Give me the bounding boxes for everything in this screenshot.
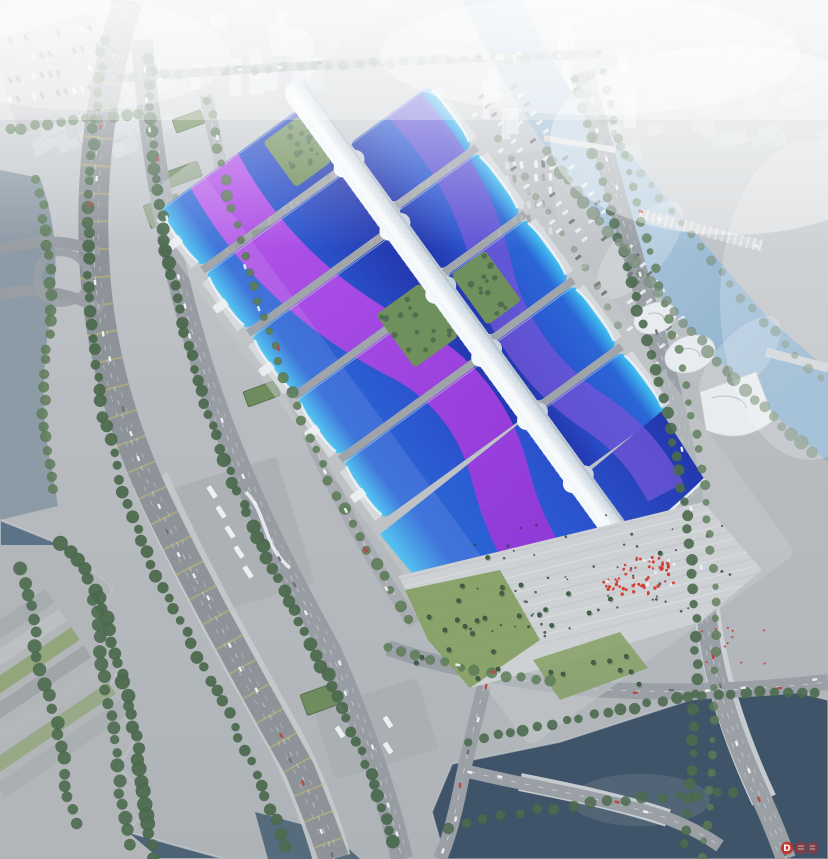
tree — [425, 655, 435, 665]
tree — [664, 314, 673, 323]
crowd-dot — [632, 590, 635, 593]
visitor-dot — [513, 550, 515, 552]
visitor-dot — [630, 516, 632, 518]
visitor-dot — [655, 598, 658, 601]
tree — [187, 350, 198, 361]
tree — [478, 814, 488, 824]
tree — [71, 818, 82, 829]
tree — [326, 681, 337, 692]
tree — [113, 748, 122, 757]
tree — [533, 722, 542, 731]
tree — [256, 780, 267, 791]
tree — [381, 813, 392, 824]
tree — [647, 350, 656, 359]
visitor-dot — [507, 544, 510, 547]
visitor-dot — [729, 573, 732, 576]
tree — [714, 690, 724, 700]
tree — [48, 484, 58, 494]
visitor-dot — [514, 590, 516, 592]
crowd-dot — [641, 584, 644, 587]
crowd-dot — [652, 560, 655, 563]
tree — [217, 453, 231, 467]
tree — [114, 789, 124, 799]
tree — [105, 637, 116, 648]
tree — [709, 564, 718, 573]
crowd-dot — [727, 642, 729, 644]
tree — [351, 737, 361, 747]
tree — [232, 486, 241, 495]
tree — [708, 769, 716, 777]
crowd-dot — [625, 588, 628, 591]
tree — [689, 721, 699, 731]
tree — [47, 472, 57, 482]
tree — [170, 280, 180, 290]
tree — [131, 730, 142, 741]
palm-fronds — [560, 671, 565, 676]
tree — [695, 445, 702, 452]
tree — [45, 305, 56, 316]
palm-fronds — [549, 623, 554, 628]
tree — [516, 809, 525, 818]
crowd-dot — [636, 557, 638, 559]
tree — [726, 690, 735, 699]
palm-fronds — [442, 627, 447, 632]
tree — [712, 598, 721, 607]
crowd-dot — [715, 628, 717, 630]
crowd-dot — [672, 563, 675, 566]
tree — [135, 535, 147, 547]
tree — [690, 631, 701, 642]
tree — [614, 322, 622, 330]
tree — [712, 357, 722, 367]
palm-fronds — [474, 618, 479, 623]
tree — [358, 747, 366, 755]
tree — [313, 446, 320, 453]
tree — [253, 771, 262, 780]
car — [633, 691, 638, 694]
tree — [40, 431, 51, 442]
tree — [684, 778, 696, 790]
tree — [706, 530, 713, 537]
crowd-dot — [731, 636, 733, 638]
tree — [304, 638, 317, 651]
tree — [636, 792, 648, 804]
tree — [165, 594, 174, 603]
tree — [211, 430, 221, 440]
tree — [687, 584, 698, 595]
tree — [68, 804, 78, 814]
crowd-dot — [646, 579, 648, 581]
crowd-dot — [763, 629, 765, 631]
tree — [40, 395, 50, 405]
tree — [548, 804, 559, 815]
tree — [224, 707, 235, 718]
crowd-dot — [657, 557, 660, 560]
tree — [185, 638, 196, 649]
tree — [28, 614, 39, 625]
crowd-dot — [647, 591, 650, 594]
tree — [332, 491, 341, 500]
tree — [323, 476, 333, 486]
tree — [274, 357, 282, 365]
crowd-dot — [649, 558, 651, 560]
tree — [665, 423, 677, 435]
tree — [602, 796, 612, 806]
tree — [101, 420, 113, 432]
crowd-dot — [624, 564, 627, 567]
tree — [287, 386, 299, 398]
tree — [162, 256, 176, 270]
palm-fronds — [499, 591, 504, 596]
tree — [322, 668, 336, 682]
tree — [783, 688, 793, 698]
tree — [117, 799, 128, 810]
tree — [680, 839, 689, 848]
tree — [173, 293, 183, 303]
palm-fronds — [482, 615, 487, 620]
tree — [91, 606, 103, 618]
tree — [143, 828, 154, 839]
tree — [517, 672, 526, 681]
tree — [136, 784, 151, 799]
tree — [84, 305, 96, 317]
tree — [94, 394, 107, 407]
visitor-dot — [527, 625, 530, 628]
palm-fronds — [475, 676, 480, 681]
tree — [410, 650, 420, 660]
tree — [204, 410, 213, 419]
car — [705, 689, 710, 692]
crowd-dot — [616, 580, 619, 583]
visitor-dot — [524, 600, 526, 602]
visitor-dot — [687, 607, 689, 609]
tree — [658, 697, 668, 707]
tree — [183, 627, 193, 637]
watermark-glyph — [796, 843, 806, 854]
visitor-dot — [533, 554, 535, 556]
crowd-dot — [652, 567, 654, 569]
watermark-logo-letter: D — [783, 844, 790, 854]
crowd-dot — [607, 588, 610, 591]
crowd-dot — [618, 585, 621, 588]
visitor-dot — [534, 591, 537, 594]
tree — [83, 253, 95, 265]
tree — [563, 716, 571, 724]
tree — [253, 298, 261, 306]
visitor-dot — [632, 575, 634, 577]
scene-aerial-rendering: D — [0, 0, 828, 859]
palm-fronds — [455, 617, 460, 622]
tree — [13, 562, 27, 576]
tree — [279, 841, 291, 853]
tree — [440, 657, 449, 666]
tree — [58, 751, 71, 764]
tree — [673, 464, 684, 475]
tree — [709, 737, 715, 743]
tree — [82, 573, 94, 585]
tree — [126, 709, 137, 720]
car — [777, 687, 782, 690]
tree — [574, 715, 582, 723]
tree — [107, 710, 117, 720]
visitor-dot — [607, 595, 609, 597]
palm-fronds — [414, 660, 419, 665]
crowd-dot — [667, 559, 670, 562]
tree — [682, 510, 693, 521]
tree — [590, 709, 599, 718]
tree — [683, 809, 692, 818]
tree — [126, 510, 139, 523]
crowd-dot — [602, 581, 605, 584]
tree — [690, 646, 698, 654]
tree — [349, 520, 357, 528]
tree — [167, 603, 178, 614]
tree — [700, 838, 706, 844]
tree — [356, 532, 365, 541]
tree — [366, 768, 378, 780]
palm-fronds — [460, 583, 465, 588]
visitor-dot — [605, 514, 607, 516]
tree — [662, 407, 674, 419]
tree — [132, 761, 147, 776]
tree — [37, 408, 48, 419]
tree — [797, 688, 807, 698]
crowd-dot — [643, 559, 646, 562]
tree — [386, 835, 399, 848]
watermark-glyph — [808, 843, 817, 854]
tree — [115, 674, 130, 689]
tree — [294, 617, 303, 626]
crowd-dot — [740, 661, 742, 663]
crowd-dot — [624, 573, 627, 576]
tree — [264, 804, 276, 816]
tree — [241, 508, 251, 518]
tree — [227, 467, 235, 475]
crowd-dot — [646, 583, 650, 587]
tree — [517, 725, 528, 736]
tree — [306, 434, 315, 443]
tree — [45, 459, 55, 469]
visitor-dot — [535, 524, 538, 527]
visitor-dot — [721, 525, 723, 527]
crowd-dot — [648, 565, 651, 568]
tree — [22, 589, 34, 601]
visitor-dot — [540, 623, 543, 626]
tree — [703, 516, 711, 524]
visitor-dot — [652, 598, 654, 600]
tree — [712, 584, 718, 590]
tree — [121, 824, 133, 836]
tree — [43, 446, 52, 455]
tree — [146, 560, 155, 569]
tree — [123, 499, 133, 509]
tree — [92, 618, 105, 631]
crowd-dot — [620, 592, 624, 596]
tree — [341, 714, 350, 723]
tree — [114, 475, 124, 485]
crowd-dot — [614, 578, 616, 580]
tree — [682, 381, 690, 389]
tree — [38, 382, 49, 393]
tree — [690, 749, 698, 757]
visitor-dot — [656, 596, 658, 598]
tree — [675, 483, 685, 493]
tree — [641, 335, 653, 347]
tree — [604, 304, 611, 311]
visitor-dot — [503, 557, 506, 560]
tree — [157, 582, 168, 593]
crowd-dot — [634, 567, 636, 569]
tree — [671, 692, 683, 704]
palm-fronds — [628, 669, 633, 674]
tree — [703, 821, 713, 831]
tree — [165, 269, 176, 280]
visitor-dot — [720, 570, 723, 573]
visitor-dot — [680, 610, 683, 613]
tree — [544, 675, 555, 686]
crowd-dot — [639, 557, 642, 560]
tree — [678, 319, 687, 328]
tree — [672, 451, 682, 461]
palm-fronds — [636, 682, 641, 687]
tree — [256, 539, 270, 553]
crowd-dot — [647, 576, 649, 578]
tree — [653, 288, 663, 298]
tree — [697, 336, 707, 346]
tree — [33, 663, 46, 676]
crowd-dot — [764, 662, 766, 664]
tree — [44, 277, 56, 289]
tree — [667, 331, 676, 340]
visitor-dot — [597, 608, 600, 611]
visitor-dot — [664, 601, 666, 603]
tree — [95, 373, 103, 381]
tree — [369, 779, 379, 789]
tree — [43, 689, 56, 702]
tree — [711, 667, 718, 674]
tree — [46, 264, 56, 274]
palm-fronds — [518, 582, 523, 587]
tree — [246, 269, 254, 277]
tree — [28, 639, 42, 653]
tree — [55, 741, 67, 753]
tree — [568, 801, 579, 812]
tree — [141, 545, 153, 557]
tree — [670, 307, 679, 316]
tree — [190, 365, 198, 373]
tree — [134, 525, 143, 534]
palm-fronds — [500, 585, 505, 590]
crowd-dot — [732, 630, 734, 632]
tree — [468, 665, 479, 676]
visitor-dot — [500, 624, 502, 626]
tree — [629, 703, 640, 714]
tree — [98, 670, 111, 683]
tree — [196, 385, 208, 397]
tree — [149, 570, 162, 583]
tree — [86, 319, 97, 330]
crowd-dot — [667, 573, 670, 576]
tree — [644, 276, 656, 288]
tree — [336, 702, 348, 714]
crowd-dot — [632, 577, 634, 579]
tree — [404, 615, 413, 624]
tree — [212, 685, 223, 696]
crowd-dot — [651, 556, 654, 559]
tree — [300, 627, 309, 636]
tree — [676, 792, 684, 800]
palm-fronds — [485, 555, 490, 560]
tree — [260, 313, 267, 320]
tree — [710, 715, 720, 725]
tree — [708, 750, 717, 759]
visitor-dot — [623, 543, 625, 545]
visitor-dot — [520, 527, 522, 529]
crowd-dot — [615, 583, 619, 587]
tree — [176, 616, 184, 624]
tree — [693, 430, 702, 439]
tree — [199, 662, 208, 671]
tree — [693, 614, 702, 623]
tree — [603, 708, 613, 718]
tree — [39, 422, 49, 432]
tree — [114, 775, 127, 788]
palm-fronds — [591, 660, 596, 665]
tree — [395, 601, 406, 612]
visitor-dot — [514, 626, 516, 628]
crowd-dot — [629, 569, 631, 571]
tree — [615, 704, 627, 716]
visitor-dot — [538, 615, 540, 617]
tree — [31, 652, 41, 662]
tree — [585, 797, 596, 808]
crowd-dot — [701, 630, 703, 632]
palm-fronds — [470, 631, 475, 636]
tree — [706, 256, 716, 266]
tree — [687, 327, 696, 336]
tree — [267, 563, 278, 574]
crowd-dot — [664, 580, 666, 582]
tree — [709, 702, 718, 711]
tree — [83, 271, 91, 279]
visitor-dot — [474, 543, 477, 546]
visitor-dot — [675, 549, 677, 551]
tree — [703, 499, 710, 506]
tree — [396, 646, 406, 656]
visitor-dot — [543, 631, 546, 634]
tree — [112, 658, 122, 668]
tree — [685, 399, 691, 405]
tree — [547, 720, 557, 730]
tree — [506, 728, 515, 737]
tree — [332, 690, 344, 702]
tree — [345, 727, 356, 738]
tree — [231, 723, 239, 731]
visitor-dot — [532, 613, 534, 615]
tree — [639, 320, 648, 329]
tree — [293, 402, 301, 410]
crowd-dot — [637, 583, 640, 586]
car — [94, 280, 97, 285]
crowd-dot — [727, 627, 729, 629]
car — [669, 689, 674, 691]
crowd-dot — [672, 581, 675, 584]
tree — [627, 254, 640, 267]
visitor-dot — [547, 577, 550, 580]
tree — [659, 393, 669, 403]
tree — [209, 422, 217, 430]
tree — [47, 704, 57, 714]
